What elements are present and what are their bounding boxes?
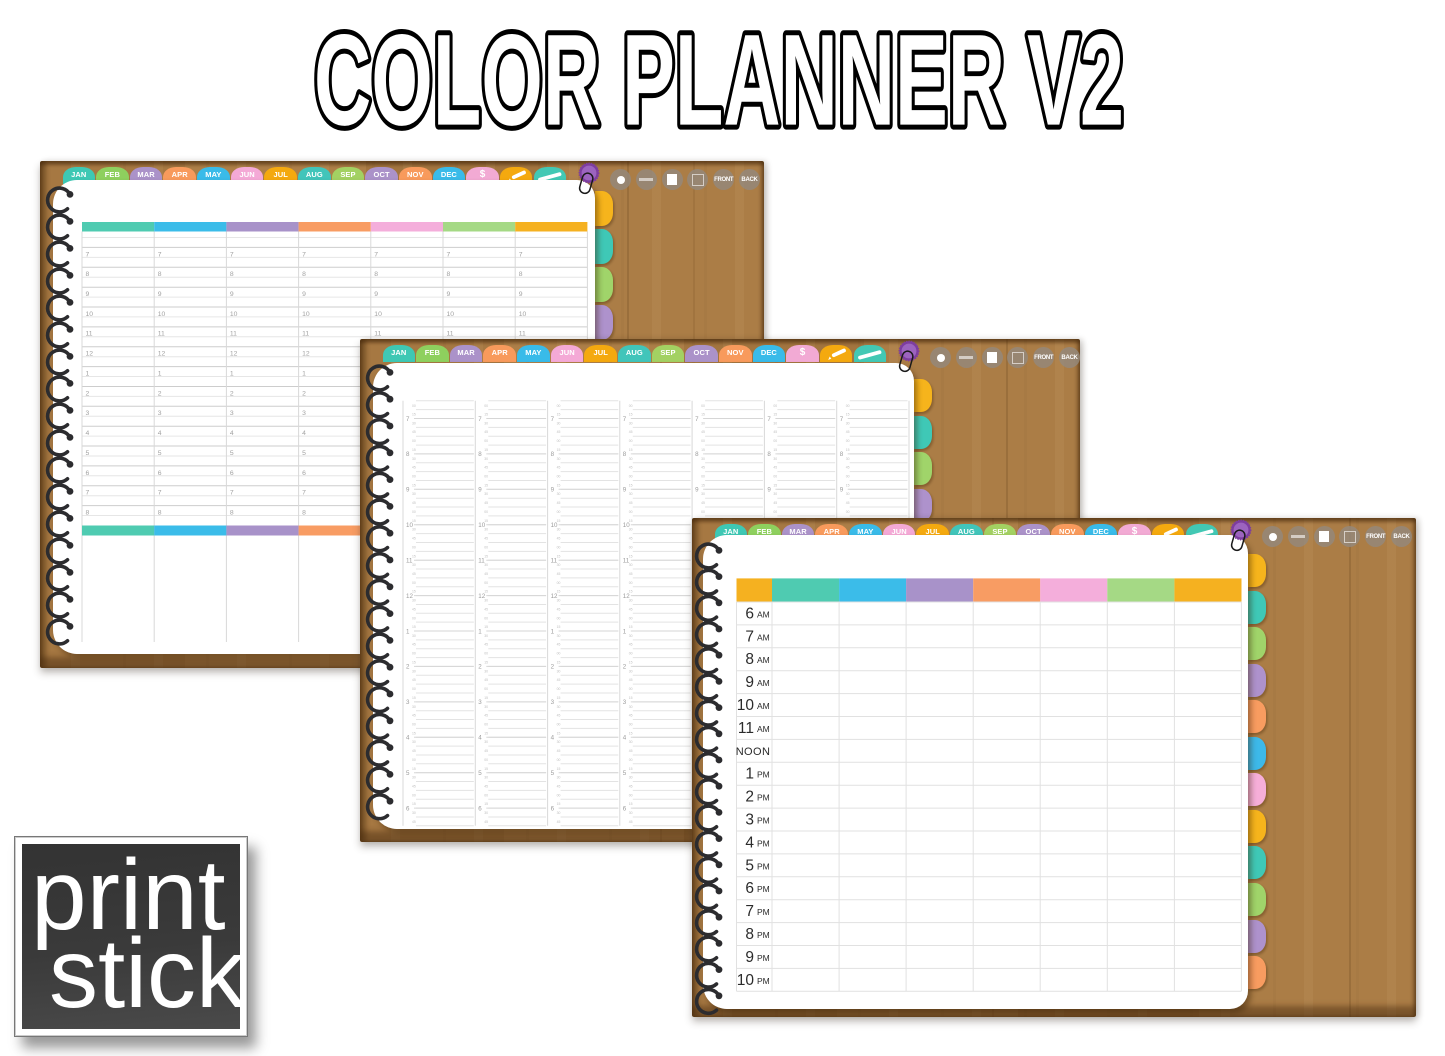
svg-text:00: 00 (484, 546, 488, 550)
svg-text:3: 3 (745, 812, 754, 829)
svg-text:11: 11 (519, 331, 526, 338)
svg-text:6: 6 (745, 880, 754, 897)
svg-text:15: 15 (773, 483, 777, 487)
svg-text:15: 15 (484, 731, 488, 735)
svg-text:1: 1 (745, 766, 754, 783)
svg-text:45: 45 (773, 501, 777, 505)
svg-text:PM: PM (757, 793, 770, 803)
svg-text:30: 30 (484, 563, 488, 567)
svg-text:7: 7 (840, 416, 844, 423)
svg-text:30: 30 (557, 776, 561, 780)
svg-text:30: 30 (412, 492, 416, 496)
svg-text:15: 15 (846, 483, 850, 487)
svg-text:15: 15 (412, 448, 416, 452)
svg-text:45: 45 (484, 466, 488, 470)
svg-text:45: 45 (557, 430, 561, 434)
svg-text:45: 45 (629, 749, 633, 753)
svg-text:COLOR PLANNER V2: COLOR PLANNER V2 (314, 7, 1124, 150)
svg-text:45: 45 (484, 607, 488, 611)
svg-text:15: 15 (701, 413, 705, 417)
svg-text:00: 00 (701, 475, 705, 479)
svg-text:9: 9 (230, 291, 234, 298)
svg-text:15: 15 (412, 413, 416, 417)
svg-text:00: 00 (557, 581, 561, 585)
svg-text:00: 00 (629, 723, 633, 727)
svg-text:8: 8 (230, 510, 234, 517)
svg-text:45: 45 (484, 501, 488, 505)
svg-text:45: 45 (557, 678, 561, 682)
svg-text:00: 00 (412, 687, 416, 691)
svg-text:15: 15 (629, 483, 633, 487)
svg-text:7: 7 (302, 490, 306, 497)
svg-text:45: 45 (846, 501, 850, 505)
svg-text:30: 30 (557, 457, 561, 461)
svg-text:00: 00 (484, 439, 488, 443)
svg-text:15: 15 (557, 519, 561, 523)
svg-text:11: 11 (230, 331, 237, 338)
svg-text:15: 15 (629, 590, 633, 594)
svg-text:00: 00 (484, 723, 488, 727)
svg-text:45: 45 (412, 678, 416, 682)
svg-text:4: 4 (86, 430, 90, 437)
svg-text:15: 15 (484, 767, 488, 771)
svg-text:5: 5 (551, 770, 555, 777)
svg-text:45: 45 (484, 572, 488, 576)
svg-text:15: 15 (701, 483, 705, 487)
svg-text:15: 15 (629, 554, 633, 558)
svg-text:45: 45 (412, 820, 416, 824)
svg-text:30: 30 (484, 492, 488, 496)
svg-text:7: 7 (374, 251, 378, 258)
svg-text:15: 15 (412, 767, 416, 771)
svg-text:15: 15 (557, 767, 561, 771)
svg-text:10: 10 (737, 697, 755, 714)
svg-text:00: 00 (773, 439, 777, 443)
svg-text:00: 00 (557, 510, 561, 514)
svg-text:7: 7 (767, 416, 771, 423)
svg-text:45: 45 (557, 537, 561, 541)
svg-text:3: 3 (230, 410, 234, 417)
svg-text:30: 30 (484, 776, 488, 780)
svg-text:6: 6 (158, 470, 162, 477)
svg-text:5: 5 (406, 770, 410, 777)
svg-text:AM: AM (757, 610, 770, 620)
svg-text:PM: PM (757, 976, 770, 986)
svg-text:00: 00 (629, 581, 633, 585)
svg-text:11: 11 (374, 331, 381, 338)
svg-text:5: 5 (302, 450, 306, 457)
svg-text:AM: AM (757, 701, 770, 711)
svg-text:30: 30 (412, 599, 416, 603)
svg-text:00: 00 (412, 723, 416, 727)
svg-text:9: 9 (374, 291, 378, 298)
svg-text:8: 8 (86, 271, 90, 278)
svg-text:15: 15 (629, 767, 633, 771)
svg-text:10: 10 (86, 311, 94, 318)
svg-text:7: 7 (519, 251, 523, 258)
svg-text:1: 1 (302, 371, 306, 378)
svg-text:8: 8 (695, 451, 699, 458)
svg-text:30: 30 (701, 421, 705, 425)
svg-text:8: 8 (230, 271, 234, 278)
svg-text:15: 15 (412, 696, 416, 700)
svg-text:00: 00 (629, 439, 633, 443)
svg-text:45: 45 (629, 501, 633, 505)
svg-text:8: 8 (302, 271, 306, 278)
svg-text:15: 15 (484, 413, 488, 417)
svg-text:30: 30 (557, 528, 561, 532)
svg-text:15: 15 (629, 625, 633, 629)
svg-text:8: 8 (447, 271, 451, 278)
svg-text:15: 15 (484, 625, 488, 629)
svg-text:45: 45 (701, 466, 705, 470)
svg-text:00: 00 (484, 475, 488, 479)
svg-text:15: 15 (484, 448, 488, 452)
svg-text:8: 8 (551, 451, 555, 458)
svg-text:7: 7 (406, 416, 410, 423)
svg-text:30: 30 (412, 421, 416, 425)
svg-text:15: 15 (629, 696, 633, 700)
svg-text:9: 9 (767, 487, 771, 494)
svg-text:15: 15 (629, 448, 633, 452)
svg-text:1: 1 (551, 628, 555, 635)
svg-text:6: 6 (745, 606, 754, 623)
svg-text:00: 00 (412, 758, 416, 762)
svg-text:30: 30 (484, 669, 488, 673)
svg-text:45: 45 (557, 820, 561, 824)
svg-text:10: 10 (737, 972, 755, 989)
svg-text:00: 00 (412, 546, 416, 550)
svg-text:11: 11 (158, 331, 165, 338)
svg-text:15: 15 (412, 483, 416, 487)
svg-text:00: 00 (412, 652, 416, 656)
svg-text:7: 7 (478, 416, 482, 423)
svg-text:1: 1 (158, 371, 162, 378)
svg-text:00: 00 (846, 510, 850, 514)
svg-text:15: 15 (773, 448, 777, 452)
svg-text:9: 9 (447, 291, 451, 298)
svg-text:12: 12 (158, 351, 166, 358)
svg-text:30: 30 (412, 634, 416, 638)
svg-text:7: 7 (158, 251, 162, 258)
svg-text:45: 45 (629, 784, 633, 788)
svg-text:7: 7 (86, 490, 90, 497)
svg-text:00: 00 (557, 793, 561, 797)
svg-text:45: 45 (412, 572, 416, 576)
svg-text:45: 45 (484, 784, 488, 788)
svg-text:15: 15 (412, 661, 416, 665)
svg-text:45: 45 (629, 643, 633, 647)
svg-text:30: 30 (773, 457, 777, 461)
svg-text:6: 6 (478, 805, 482, 812)
svg-text:00: 00 (412, 581, 416, 585)
svg-text:00: 00 (557, 723, 561, 727)
svg-text:00: 00 (629, 758, 633, 762)
svg-text:45: 45 (557, 607, 561, 611)
svg-text:30: 30 (484, 634, 488, 638)
svg-text:12: 12 (230, 351, 238, 358)
svg-text:45: 45 (484, 537, 488, 541)
svg-text:4: 4 (230, 430, 234, 437)
svg-text:00: 00 (629, 475, 633, 479)
svg-text:45: 45 (412, 501, 416, 505)
svg-text:00: 00 (846, 475, 850, 479)
svg-text:45: 45 (412, 714, 416, 718)
svg-text:30: 30 (484, 457, 488, 461)
svg-text:9: 9 (623, 487, 627, 494)
svg-text:30: 30 (557, 563, 561, 567)
svg-text:30: 30 (557, 634, 561, 638)
svg-text:15: 15 (412, 625, 416, 629)
svg-text:10: 10 (230, 311, 238, 318)
svg-text:15: 15 (629, 731, 633, 735)
svg-text:1: 1 (478, 628, 482, 635)
svg-text:45: 45 (557, 784, 561, 788)
svg-text:00: 00 (412, 439, 416, 443)
svg-text:6: 6 (86, 470, 90, 477)
svg-text:30: 30 (629, 634, 633, 638)
svg-text:45: 45 (629, 678, 633, 682)
svg-text:00: 00 (484, 616, 488, 620)
svg-text:30: 30 (412, 669, 416, 673)
svg-text:11: 11 (302, 331, 309, 338)
svg-text:15: 15 (557, 448, 561, 452)
svg-text:00: 00 (846, 439, 850, 443)
svg-text:7: 7 (447, 251, 451, 258)
svg-text:4: 4 (551, 735, 555, 742)
svg-text:30: 30 (557, 811, 561, 815)
svg-text:00: 00 (629, 546, 633, 550)
svg-text:00: 00 (484, 687, 488, 691)
svg-text:6: 6 (230, 470, 234, 477)
svg-text:15: 15 (412, 519, 416, 523)
svg-text:5: 5 (745, 857, 754, 874)
svg-text:30: 30 (629, 811, 633, 815)
svg-text:8: 8 (478, 451, 482, 458)
svg-text:00: 00 (412, 475, 416, 479)
svg-text:00: 00 (412, 404, 416, 408)
svg-text:2: 2 (230, 390, 234, 397)
svg-text:7: 7 (745, 903, 754, 920)
svg-text:2: 2 (86, 390, 90, 397)
svg-text:PM: PM (757, 816, 770, 826)
svg-text:3: 3 (406, 699, 410, 706)
svg-text:30: 30 (412, 740, 416, 744)
svg-text:8: 8 (302, 510, 306, 517)
svg-text:45: 45 (412, 607, 416, 611)
svg-text:6: 6 (551, 805, 555, 812)
svg-text:00: 00 (412, 793, 416, 797)
svg-text:15: 15 (846, 413, 850, 417)
svg-text:15: 15 (557, 625, 561, 629)
svg-text:30: 30 (629, 528, 633, 532)
svg-text:30: 30 (557, 669, 561, 673)
svg-text:30: 30 (629, 669, 633, 673)
svg-text:11: 11 (86, 331, 93, 338)
svg-text:30: 30 (629, 492, 633, 496)
svg-text:9: 9 (478, 487, 482, 494)
svg-text:00: 00 (846, 404, 850, 408)
svg-text:PM: PM (757, 861, 770, 871)
svg-text:00: 00 (701, 510, 705, 514)
svg-text:15: 15 (629, 661, 633, 665)
svg-text:11: 11 (738, 720, 754, 737)
svg-text:NOON: NOON (736, 746, 771, 758)
svg-text:00: 00 (484, 652, 488, 656)
svg-text:45: 45 (557, 572, 561, 576)
svg-text:15: 15 (557, 802, 561, 806)
svg-text:9: 9 (551, 487, 555, 494)
svg-text:9: 9 (302, 291, 306, 298)
svg-text:15: 15 (412, 802, 416, 806)
svg-text:2: 2 (623, 664, 627, 671)
svg-text:00: 00 (557, 758, 561, 762)
svg-text:PM: PM (757, 907, 770, 917)
svg-text:AM: AM (757, 632, 770, 642)
svg-text:10: 10 (374, 311, 382, 318)
svg-text:00: 00 (557, 404, 561, 408)
svg-text:7: 7 (623, 416, 627, 423)
svg-text:7: 7 (230, 490, 234, 497)
svg-text:2: 2 (745, 789, 754, 806)
svg-text:30: 30 (412, 457, 416, 461)
svg-text:4: 4 (745, 834, 754, 851)
svg-text:00: 00 (484, 510, 488, 514)
svg-text:8: 8 (406, 451, 410, 458)
svg-text:10: 10 (158, 311, 166, 318)
svg-text:9: 9 (158, 291, 162, 298)
svg-text:8: 8 (86, 510, 90, 517)
svg-text:45: 45 (846, 430, 850, 434)
svg-text:4: 4 (158, 430, 162, 437)
svg-text:45: 45 (629, 537, 633, 541)
svg-text:8: 8 (519, 271, 523, 278)
svg-text:15: 15 (484, 483, 488, 487)
svg-text:00: 00 (629, 404, 633, 408)
svg-text:5: 5 (230, 450, 234, 457)
svg-text:15: 15 (412, 554, 416, 558)
svg-text:2: 2 (551, 664, 555, 671)
svg-text:9: 9 (695, 487, 699, 494)
svg-text:10: 10 (302, 311, 310, 318)
svg-text:00: 00 (412, 616, 416, 620)
svg-text:5: 5 (86, 450, 90, 457)
svg-text:1: 1 (406, 628, 410, 635)
svg-text:15: 15 (773, 413, 777, 417)
svg-text:45: 45 (629, 820, 633, 824)
svg-text:30: 30 (557, 740, 561, 744)
svg-text:9: 9 (519, 291, 523, 298)
svg-text:45: 45 (484, 430, 488, 434)
svg-text:AM: AM (757, 724, 770, 734)
svg-text:15: 15 (701, 448, 705, 452)
svg-text:6: 6 (623, 805, 627, 812)
svg-text:45: 45 (412, 784, 416, 788)
svg-text:00: 00 (629, 510, 633, 514)
svg-text:45: 45 (629, 714, 633, 718)
svg-text:45: 45 (484, 678, 488, 682)
svg-text:00: 00 (773, 404, 777, 408)
svg-text:3: 3 (551, 699, 555, 706)
svg-text:45: 45 (773, 430, 777, 434)
svg-text:15: 15 (484, 696, 488, 700)
svg-text:00: 00 (557, 687, 561, 691)
svg-text:3: 3 (302, 410, 306, 417)
svg-text:15: 15 (629, 802, 633, 806)
svg-text:11: 11 (447, 331, 454, 338)
svg-text:4: 4 (478, 735, 482, 742)
svg-text:00: 00 (484, 404, 488, 408)
svg-text:15: 15 (557, 413, 561, 417)
svg-text:5: 5 (158, 450, 162, 457)
svg-text:45: 45 (629, 466, 633, 470)
svg-text:PM: PM (757, 884, 770, 894)
svg-text:9: 9 (745, 674, 754, 691)
svg-text:PM: PM (757, 930, 770, 940)
svg-text:15: 15 (412, 590, 416, 594)
svg-text:15: 15 (484, 661, 488, 665)
svg-text:30: 30 (412, 776, 416, 780)
svg-text:8: 8 (767, 451, 771, 458)
svg-text:3: 3 (478, 699, 482, 706)
svg-text:30: 30 (557, 421, 561, 425)
svg-text:30: 30 (412, 705, 416, 709)
svg-text:3: 3 (623, 699, 627, 706)
svg-text:15: 15 (557, 483, 561, 487)
svg-text:5: 5 (478, 770, 482, 777)
svg-text:9: 9 (86, 291, 90, 298)
svg-text:PM: PM (757, 953, 770, 963)
svg-text:8: 8 (840, 451, 844, 458)
svg-text:15: 15 (484, 802, 488, 806)
svg-text:30: 30 (846, 421, 850, 425)
svg-text:4: 4 (406, 735, 410, 742)
svg-text:30: 30 (484, 705, 488, 709)
svg-text:15: 15 (557, 590, 561, 594)
svg-text:AM: AM (757, 655, 770, 665)
svg-text:12: 12 (302, 351, 310, 358)
svg-text:30: 30 (701, 492, 705, 496)
svg-text:45: 45 (629, 430, 633, 434)
svg-text:2: 2 (478, 664, 482, 671)
svg-text:00: 00 (557, 439, 561, 443)
svg-text:15: 15 (629, 413, 633, 417)
svg-text:30: 30 (629, 740, 633, 744)
svg-text:45: 45 (412, 749, 416, 753)
svg-text:30: 30 (846, 457, 850, 461)
svg-text:6: 6 (302, 470, 306, 477)
svg-text:30: 30 (412, 811, 416, 815)
svg-text:2: 2 (302, 390, 306, 397)
svg-text:45: 45 (557, 643, 561, 647)
svg-text:30: 30 (412, 528, 416, 532)
svg-text:7: 7 (551, 416, 555, 423)
svg-text:30: 30 (484, 528, 488, 532)
svg-text:45: 45 (484, 643, 488, 647)
svg-text:30: 30 (484, 421, 488, 425)
svg-text:3: 3 (158, 410, 162, 417)
svg-text:00: 00 (484, 793, 488, 797)
svg-text:00: 00 (484, 581, 488, 585)
svg-text:30: 30 (773, 492, 777, 496)
svg-text:1: 1 (230, 371, 234, 378)
svg-text:15: 15 (484, 519, 488, 523)
svg-text:15: 15 (412, 731, 416, 735)
svg-text:30: 30 (629, 563, 633, 567)
svg-text:45: 45 (701, 430, 705, 434)
svg-text:6: 6 (406, 805, 410, 812)
svg-text:15: 15 (557, 696, 561, 700)
